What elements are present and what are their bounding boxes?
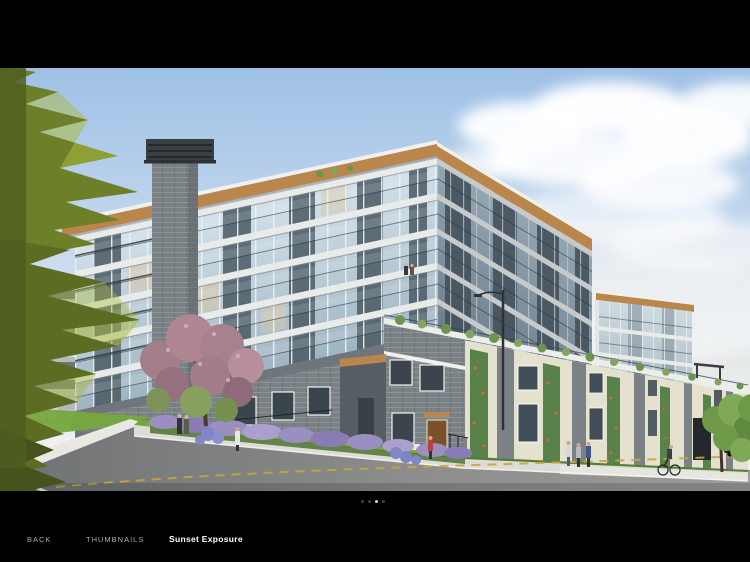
page-dot[interactable] [382,500,385,503]
viewer-stage: BACK THUMBNAILS Sunset Exposure [0,0,750,562]
view-title-label: Sunset Exposure [169,534,243,544]
rendering-scene [0,68,750,491]
page-indicator[interactable] [361,500,385,503]
bottom-bar: BACK THUMBNAILS Sunset Exposure [0,491,750,562]
rendering-photo[interactable] [0,68,750,491]
top-letterbox-bar [0,0,750,68]
page-dot[interactable] [361,500,364,503]
thumbnails-button[interactable]: THUMBNAILS [86,535,144,544]
page-dot[interactable] [368,500,371,503]
back-button[interactable]: BACK [27,535,51,544]
page-dot[interactable] [375,500,378,503]
